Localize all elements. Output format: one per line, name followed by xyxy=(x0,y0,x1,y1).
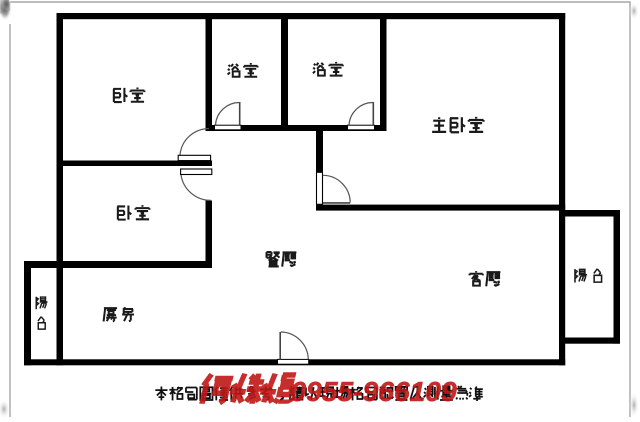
svg-text:0955-966109: 0955-966109 xyxy=(291,375,457,407)
